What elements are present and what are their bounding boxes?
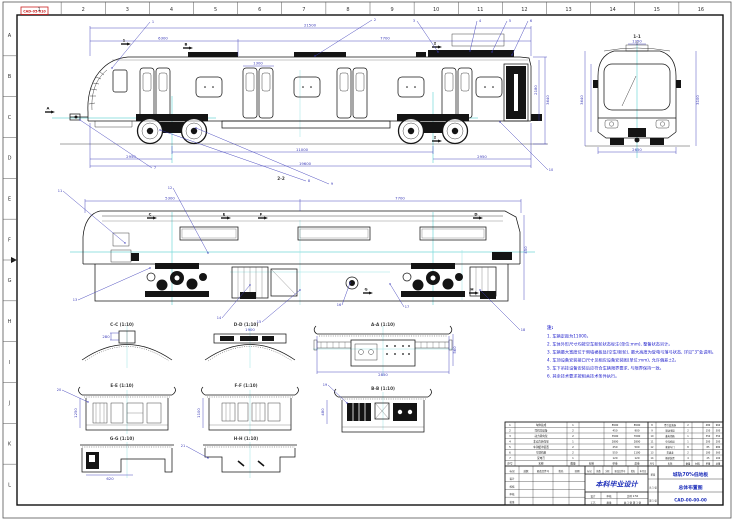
leader-line xyxy=(480,290,520,330)
leader-dot xyxy=(389,283,390,284)
bom-left-cell: 550 xyxy=(613,451,618,455)
dim-label: 2950 xyxy=(126,154,136,159)
dim-label: 3100 xyxy=(695,95,700,105)
grid-number: 10 xyxy=(433,7,439,13)
leader-dot xyxy=(124,242,125,243)
cut-flag-letter: H xyxy=(470,286,473,291)
change-row-cell: 分区 xyxy=(605,469,610,473)
bom-right-cell: 总重 xyxy=(716,462,721,466)
bom-right-cell: 2 xyxy=(687,452,689,455)
cut-flag-arrow xyxy=(438,46,442,49)
window-4 xyxy=(476,77,502,97)
leader-number: 17 xyxy=(405,305,409,309)
change-row-cell: 处数 xyxy=(596,469,601,473)
bom-right-cell: 13 xyxy=(651,452,654,455)
dim-label: 1100 xyxy=(196,408,201,418)
bom-right-cell: 200 xyxy=(706,441,711,444)
cut-flag-letter: A xyxy=(47,105,50,110)
revision-block-cell: 签名 xyxy=(558,469,564,473)
leader-number: 4 xyxy=(479,19,482,23)
dim-label: 11000 xyxy=(296,147,309,152)
roof-equipment-3 xyxy=(428,50,514,57)
dim-label: 1900 xyxy=(245,327,255,332)
dim-label: 6300 xyxy=(158,36,168,41)
note-line: 5. 车下吊挂设备安装后应符合车辆限界要求, 与限界保持一致。 xyxy=(547,365,664,372)
window-2 xyxy=(294,77,320,97)
cross-sections xyxy=(79,326,299,478)
grid-number: 9 xyxy=(390,7,393,13)
leader-line xyxy=(500,122,548,170)
bom-left-cell: 2 xyxy=(509,429,511,433)
door-pair-3 xyxy=(337,68,367,118)
bom-right-cell: 序号 xyxy=(650,462,655,466)
bom-left-cell: 材料 xyxy=(589,462,595,466)
cab-window xyxy=(113,70,127,92)
leader-number: 8 xyxy=(308,179,310,183)
grid-number: 8 xyxy=(346,7,349,13)
bom-right-cell: 12 xyxy=(651,446,654,449)
dim-label: 1300 xyxy=(253,61,263,66)
leader-number: 7 xyxy=(154,166,156,170)
bom-right-cell: 单重 xyxy=(706,462,711,466)
product-name: 城轨70%低地板 xyxy=(673,471,709,478)
bom-left-cell: 2 xyxy=(572,434,574,438)
front-end-view xyxy=(585,41,696,158)
section-label: G-G (1:10) xyxy=(110,436,134,441)
leader-dot xyxy=(159,129,160,130)
bom-left-cell: 车体总成 xyxy=(536,423,547,427)
approval-stamp: CAD-05-010 xyxy=(21,7,48,15)
leader-line xyxy=(328,385,347,403)
leader-line xyxy=(492,21,507,52)
leader-dot xyxy=(207,252,208,253)
cut-flag-letter: E xyxy=(223,211,226,216)
bom-left-cell: 7 xyxy=(509,456,511,460)
bom-right-cell: 牵引变流器 xyxy=(664,423,676,427)
grid-number: 5 xyxy=(214,7,217,13)
sign-block-cell: 批准 xyxy=(606,500,612,504)
bom-right-cell: 材料 xyxy=(695,462,700,466)
dim-label: 450 xyxy=(523,246,528,254)
sign-block-cell: 工艺 xyxy=(590,500,596,504)
bom-left-cell: 8500 xyxy=(612,423,619,427)
revision-block-cell: 更改文件号 xyxy=(537,469,550,473)
bom-left-cell: 2 xyxy=(572,445,574,449)
dim-label: 7700 xyxy=(395,196,405,201)
leader-number: 14 xyxy=(217,316,222,320)
revision-block-cell: 批准 xyxy=(509,500,515,504)
dim-label: 280 xyxy=(102,334,110,339)
leader-dot xyxy=(149,267,150,268)
bom-right-cell: 100 xyxy=(716,457,721,460)
notes-block: 注:1. 车辆定距为11000。2. 车体外形尺寸均按空车新轮状态标注(单位:m… xyxy=(547,324,716,380)
bom-right-cell: 4 xyxy=(687,457,689,460)
bom-left-cell: 120 xyxy=(635,456,640,460)
bom-left-cell: 3500 xyxy=(612,434,619,438)
grid-letter: L xyxy=(8,482,11,488)
bom-right-cell: 360 xyxy=(716,452,721,455)
note-line: 3. 车辆最大宽度位于侧墙裙板处(空车/新轮), 最大高度为受电弓落弓状态, 详… xyxy=(547,349,716,356)
bom-left-cell: 司机室设备 xyxy=(535,429,548,433)
leader-number: 15 xyxy=(257,320,261,324)
cut-flag-arrow xyxy=(369,292,373,295)
bom-left-cell: 非动力转向架 xyxy=(533,440,549,444)
bom-right-cell: 名称 xyxy=(668,462,673,466)
bom-left-cell: 900 xyxy=(635,429,640,433)
bom-right-cell: 2 xyxy=(687,430,689,433)
bom-left-cell: 2800 xyxy=(634,440,641,444)
grid-number: 14 xyxy=(610,7,616,13)
cut-flag-letter: B xyxy=(185,41,188,46)
bom-left-cell: 5 xyxy=(509,445,511,449)
bom-left-cell: 车钩缓冲装置 xyxy=(533,445,549,449)
leader-dot xyxy=(314,55,315,56)
bom-right-cell: 180 xyxy=(706,452,711,455)
project-title: 本科毕业设计 xyxy=(596,480,639,489)
notes-title: 注: xyxy=(547,324,553,331)
bom-left-cell: 动力转向架 xyxy=(535,434,548,438)
grid-number: 16 xyxy=(698,7,704,13)
leader-number: 13 xyxy=(73,298,77,302)
bom-left-cell: 1 xyxy=(509,423,511,427)
note-line: 2. 车体外形尺寸均按空车新轮状态标注(单位:mm), 整备状态另计。 xyxy=(547,341,673,348)
section-label: 2-2 xyxy=(277,176,285,181)
cut-flag-arrow xyxy=(189,47,193,50)
leader-dot xyxy=(299,289,300,290)
leader-line xyxy=(417,21,438,52)
sheet-name: 总体布置图 xyxy=(679,484,703,491)
leader-dot xyxy=(511,54,512,55)
section-label: A-A (1:10) xyxy=(371,322,395,327)
bom-right-cell: 11 xyxy=(651,441,654,444)
leader-number: 9 xyxy=(331,182,333,186)
bom-left-cell: 250 xyxy=(613,445,618,449)
bom-right-cell: 8 xyxy=(651,424,653,427)
window-1 xyxy=(196,77,222,97)
sign-block-cell: 设计 xyxy=(590,494,596,498)
leader-line xyxy=(173,188,208,253)
bom-right-cell: 蓄电池箱 xyxy=(665,434,675,438)
sign-block-cell: 审核 xyxy=(606,494,612,498)
roof-equipment-1 xyxy=(188,52,238,57)
bom-right-cell: 10 xyxy=(651,435,654,438)
dim-label: 2650 xyxy=(632,147,642,152)
dim-label: 5300 xyxy=(165,196,175,201)
bom-left-cell: 8500 xyxy=(634,423,641,427)
sign-block-cell: 共 1 张 第 1 张 xyxy=(624,500,642,504)
bom-right-cell: 300 xyxy=(716,430,721,433)
drawing-sheet: CAD-05-010 xyxy=(0,0,734,520)
section-label: F-F (1:10) xyxy=(234,383,257,388)
change-row-cell: 更改文件号 xyxy=(615,469,627,473)
grid-letter: F xyxy=(8,237,11,243)
cut-flag-arrow xyxy=(127,43,131,46)
bom-left-cell: 4 xyxy=(509,440,511,444)
leader-dot xyxy=(437,51,438,52)
page-block-cell: 第 1 张 xyxy=(649,499,657,503)
bom-right-cell: 数量 xyxy=(686,462,691,466)
bom-right-cell: 680 xyxy=(716,446,721,449)
change-row-cell: 签名 xyxy=(631,469,635,473)
bom-left-cell: 序号 xyxy=(507,462,513,466)
bom-right-cell: 350 xyxy=(716,435,721,438)
cut-flag-arrow xyxy=(153,217,157,220)
bom-right-cell: 960 xyxy=(716,424,721,427)
leader-number: 20 xyxy=(57,388,61,392)
stamp-text: CAD-05-010 xyxy=(23,9,46,13)
note-line: 1. 车辆定距为11000。 xyxy=(547,333,591,340)
dim-label: 480 xyxy=(320,408,325,416)
grid-number: 3 xyxy=(126,7,129,13)
bom-left-cell: 500 xyxy=(635,445,640,449)
leader-number: 3 xyxy=(413,19,415,23)
dim-label: 21500 xyxy=(304,23,317,28)
bom-right-cell: 贯通道 xyxy=(667,451,675,455)
grid-number: 7 xyxy=(302,7,305,13)
grid-number: 12 xyxy=(521,7,527,13)
grid-letter: A xyxy=(8,33,12,39)
bom-right-cell: 200 xyxy=(716,441,721,444)
cut-flag-letter: F xyxy=(260,211,263,216)
leader-line xyxy=(512,21,528,55)
bom-left-cell: 3 xyxy=(509,434,511,438)
door-pair-2 xyxy=(243,68,273,118)
change-row-cell: 标记 xyxy=(587,469,592,473)
dim-label: 1250 xyxy=(73,408,78,418)
leader-line xyxy=(112,22,150,68)
leader-number: 16 xyxy=(337,303,341,307)
cut-flag-arrow xyxy=(475,292,479,295)
dim-label: 620 xyxy=(106,476,114,481)
bom-right-cell: 14 xyxy=(651,457,654,460)
leader-number: 10 xyxy=(549,168,553,172)
grid-number: 15 xyxy=(654,7,660,13)
bom-right-cell: 480 xyxy=(706,424,711,427)
revision-block-cell: 审核 xyxy=(509,492,515,496)
revision-block-cell: 校核 xyxy=(509,484,515,488)
leader-number: 1 xyxy=(152,20,154,24)
grid-letter: J xyxy=(8,401,10,407)
bom-left-cell: 单重 xyxy=(612,462,618,466)
dim-label: 19600 xyxy=(299,161,312,166)
bom-right-cell: 1 xyxy=(687,441,689,444)
revision-block-cell: 标记 xyxy=(509,469,515,473)
bom-right-cell: 1 xyxy=(687,435,689,438)
rear-coupler xyxy=(531,114,542,121)
dim-label: 3640 xyxy=(579,95,584,105)
cut-flag-arrow xyxy=(264,217,268,220)
cut-flag-letter: 1 xyxy=(123,37,126,42)
leader-dot xyxy=(249,284,250,285)
dim-label: 2180 xyxy=(533,85,538,95)
revision-block-cell: 处数 xyxy=(523,469,529,473)
note-line: 4. 车顶设备安装接口尺寸见相应设备安装图(单位:mm), 允许偏差±2。 xyxy=(547,357,679,364)
leader-number: 11 xyxy=(58,189,62,193)
leader-number: 12 xyxy=(168,186,172,190)
grid-number: 6 xyxy=(258,7,261,13)
grid-letter: I xyxy=(9,360,10,366)
bogie-gear-2 xyxy=(401,263,465,297)
grid-number: 2 xyxy=(82,7,85,13)
underframe-sections xyxy=(313,326,453,432)
cad-drawing: CAD-05-010 xyxy=(0,0,734,520)
leader-line xyxy=(62,390,88,402)
grid-letter: E xyxy=(8,197,11,203)
revision-block-cell: 设计 xyxy=(509,477,515,481)
view-labels: 1-12-2A-A (1:10)B-B (1:10)C-C (1:10)D-D … xyxy=(110,34,641,441)
bom-left-cell: 2 xyxy=(572,451,574,455)
door-pair-1 xyxy=(140,68,170,118)
leader-line xyxy=(222,285,250,318)
cut-flag-arrow xyxy=(51,111,55,114)
longitudinal-section-view xyxy=(70,199,535,305)
grid-number: 4 xyxy=(170,7,173,13)
sign-block-cell: 比例 1:50 xyxy=(627,494,639,498)
leader-dot xyxy=(111,67,112,68)
bom-right-cell: 8 xyxy=(687,446,689,449)
leader-number: 2 xyxy=(374,18,376,22)
bom-left-cell: 120 xyxy=(613,456,618,460)
door-pair-4 xyxy=(442,68,472,118)
section-label: C-C (1:10) xyxy=(110,322,134,327)
bom-left-cell: 6 xyxy=(509,451,511,455)
bom-left-cell: 1 xyxy=(572,456,574,460)
bom-left-cell: 空调机组 xyxy=(536,451,547,455)
bom-left-cell: 1 xyxy=(572,423,574,427)
grid-letter: G xyxy=(8,278,12,284)
leader-line xyxy=(63,191,125,243)
revision-block-cell: 日期 xyxy=(574,469,580,473)
bom-left-cell: 2800 xyxy=(612,440,619,444)
leader-dot xyxy=(79,119,80,120)
bom-right-cell: 9 xyxy=(651,430,653,433)
bom-left-cell: 1100 xyxy=(634,451,641,455)
leader-line xyxy=(78,268,150,300)
cut-flag-arrow xyxy=(227,217,231,220)
cut-flag-arrow xyxy=(479,217,483,220)
dim-label: 2950 xyxy=(477,154,487,159)
dim-label: 7700 xyxy=(380,36,390,41)
bom-left-cell: 数量 xyxy=(570,462,576,466)
section-label: E-E (1:10) xyxy=(110,383,133,388)
leader-dot xyxy=(207,457,208,458)
grid-number: 1 xyxy=(37,7,40,13)
bom-left-cell: 7000 xyxy=(634,434,641,438)
bom-right-cell: 150 xyxy=(706,430,711,433)
drawing-number: CAD-00-00-00 xyxy=(674,498,707,503)
dim-label: 1250 xyxy=(632,39,642,44)
leader-dot xyxy=(469,50,470,51)
leader-line xyxy=(470,21,477,51)
leader-dot xyxy=(349,282,350,283)
dim-label: 3640 xyxy=(545,95,550,105)
bom-left-cell: 2 xyxy=(572,429,574,433)
leader-dot xyxy=(479,289,480,290)
grid-letter: K xyxy=(8,442,12,448)
grid-letter: H xyxy=(8,319,12,325)
leader-dot xyxy=(491,51,492,52)
leader-number: 19 xyxy=(323,383,327,387)
bom-left-cell: 总重 xyxy=(634,462,640,466)
bom-left-cell: 名称 xyxy=(538,462,544,466)
underbody-skirt xyxy=(222,121,390,128)
leader-number: 5 xyxy=(509,19,511,23)
leader-number: 6 xyxy=(530,19,532,23)
window-3 xyxy=(398,77,424,97)
section-label: B-B (1:10) xyxy=(371,386,395,391)
bom-left-cell: 450 xyxy=(613,429,618,433)
leader-lines: 123456789101112131415161718192021 xyxy=(57,18,553,458)
leader-number: 18 xyxy=(521,328,525,332)
leader-line xyxy=(196,128,329,184)
cut-flag-letter: D xyxy=(474,211,477,216)
grid-letter: D xyxy=(8,156,12,162)
leader-number: 21 xyxy=(181,444,185,448)
bom-and-title-tables: 1车体总成1850085002司机室设备24509003动力转向架2350070… xyxy=(505,422,723,505)
leader-dot xyxy=(195,127,196,128)
bom-left-cell: 1 xyxy=(572,440,574,444)
page-block-cell: 阶段 xyxy=(651,473,656,477)
cut-flag-letter: 2 xyxy=(434,134,437,139)
note-line: 6. 其余技术要求按相关技术条件执行。 xyxy=(547,373,619,380)
grid-number: 13 xyxy=(565,7,571,13)
cut-flag-arrow xyxy=(438,140,442,143)
leader-line xyxy=(160,130,306,181)
bogie-gear-1 xyxy=(145,263,209,297)
leader-dot xyxy=(346,402,347,403)
bom-right-cell: 85 xyxy=(707,446,710,449)
bom-right-cell: 制动电阻 xyxy=(665,429,675,433)
section-label: H-H (1:10) xyxy=(234,436,259,441)
dim-label: 560 xyxy=(452,346,457,354)
bom-right-cell: 2 xyxy=(687,424,689,427)
cut-flag-letter: 2 xyxy=(434,40,437,45)
leader-dot xyxy=(499,121,500,122)
bom-left-cell: 受电弓 xyxy=(537,456,545,460)
dim-label: 2850 xyxy=(378,372,388,377)
bom-right-cell: 客室车门 xyxy=(665,445,675,449)
page-block-cell: 共 1 张 xyxy=(649,486,657,490)
leader-line xyxy=(315,20,372,56)
cut-flag-letter: G xyxy=(364,286,367,291)
pantograph-envelope xyxy=(452,34,504,46)
leader-line xyxy=(342,283,350,305)
bom-right-cell: 350 xyxy=(706,435,711,438)
grid-letter: C xyxy=(8,115,12,121)
leader-dot xyxy=(87,401,88,402)
grid-letter: B xyxy=(8,74,12,80)
bom-right-cell: 空压机组 xyxy=(665,440,675,444)
grid-number: 11 xyxy=(477,7,483,13)
bom-right-cell: 撒砂装置 xyxy=(665,456,675,460)
change-row-cell: 年月日 xyxy=(640,469,647,473)
bom-right-cell: 25 xyxy=(707,457,710,460)
cut-flag-letter: C xyxy=(149,211,152,216)
